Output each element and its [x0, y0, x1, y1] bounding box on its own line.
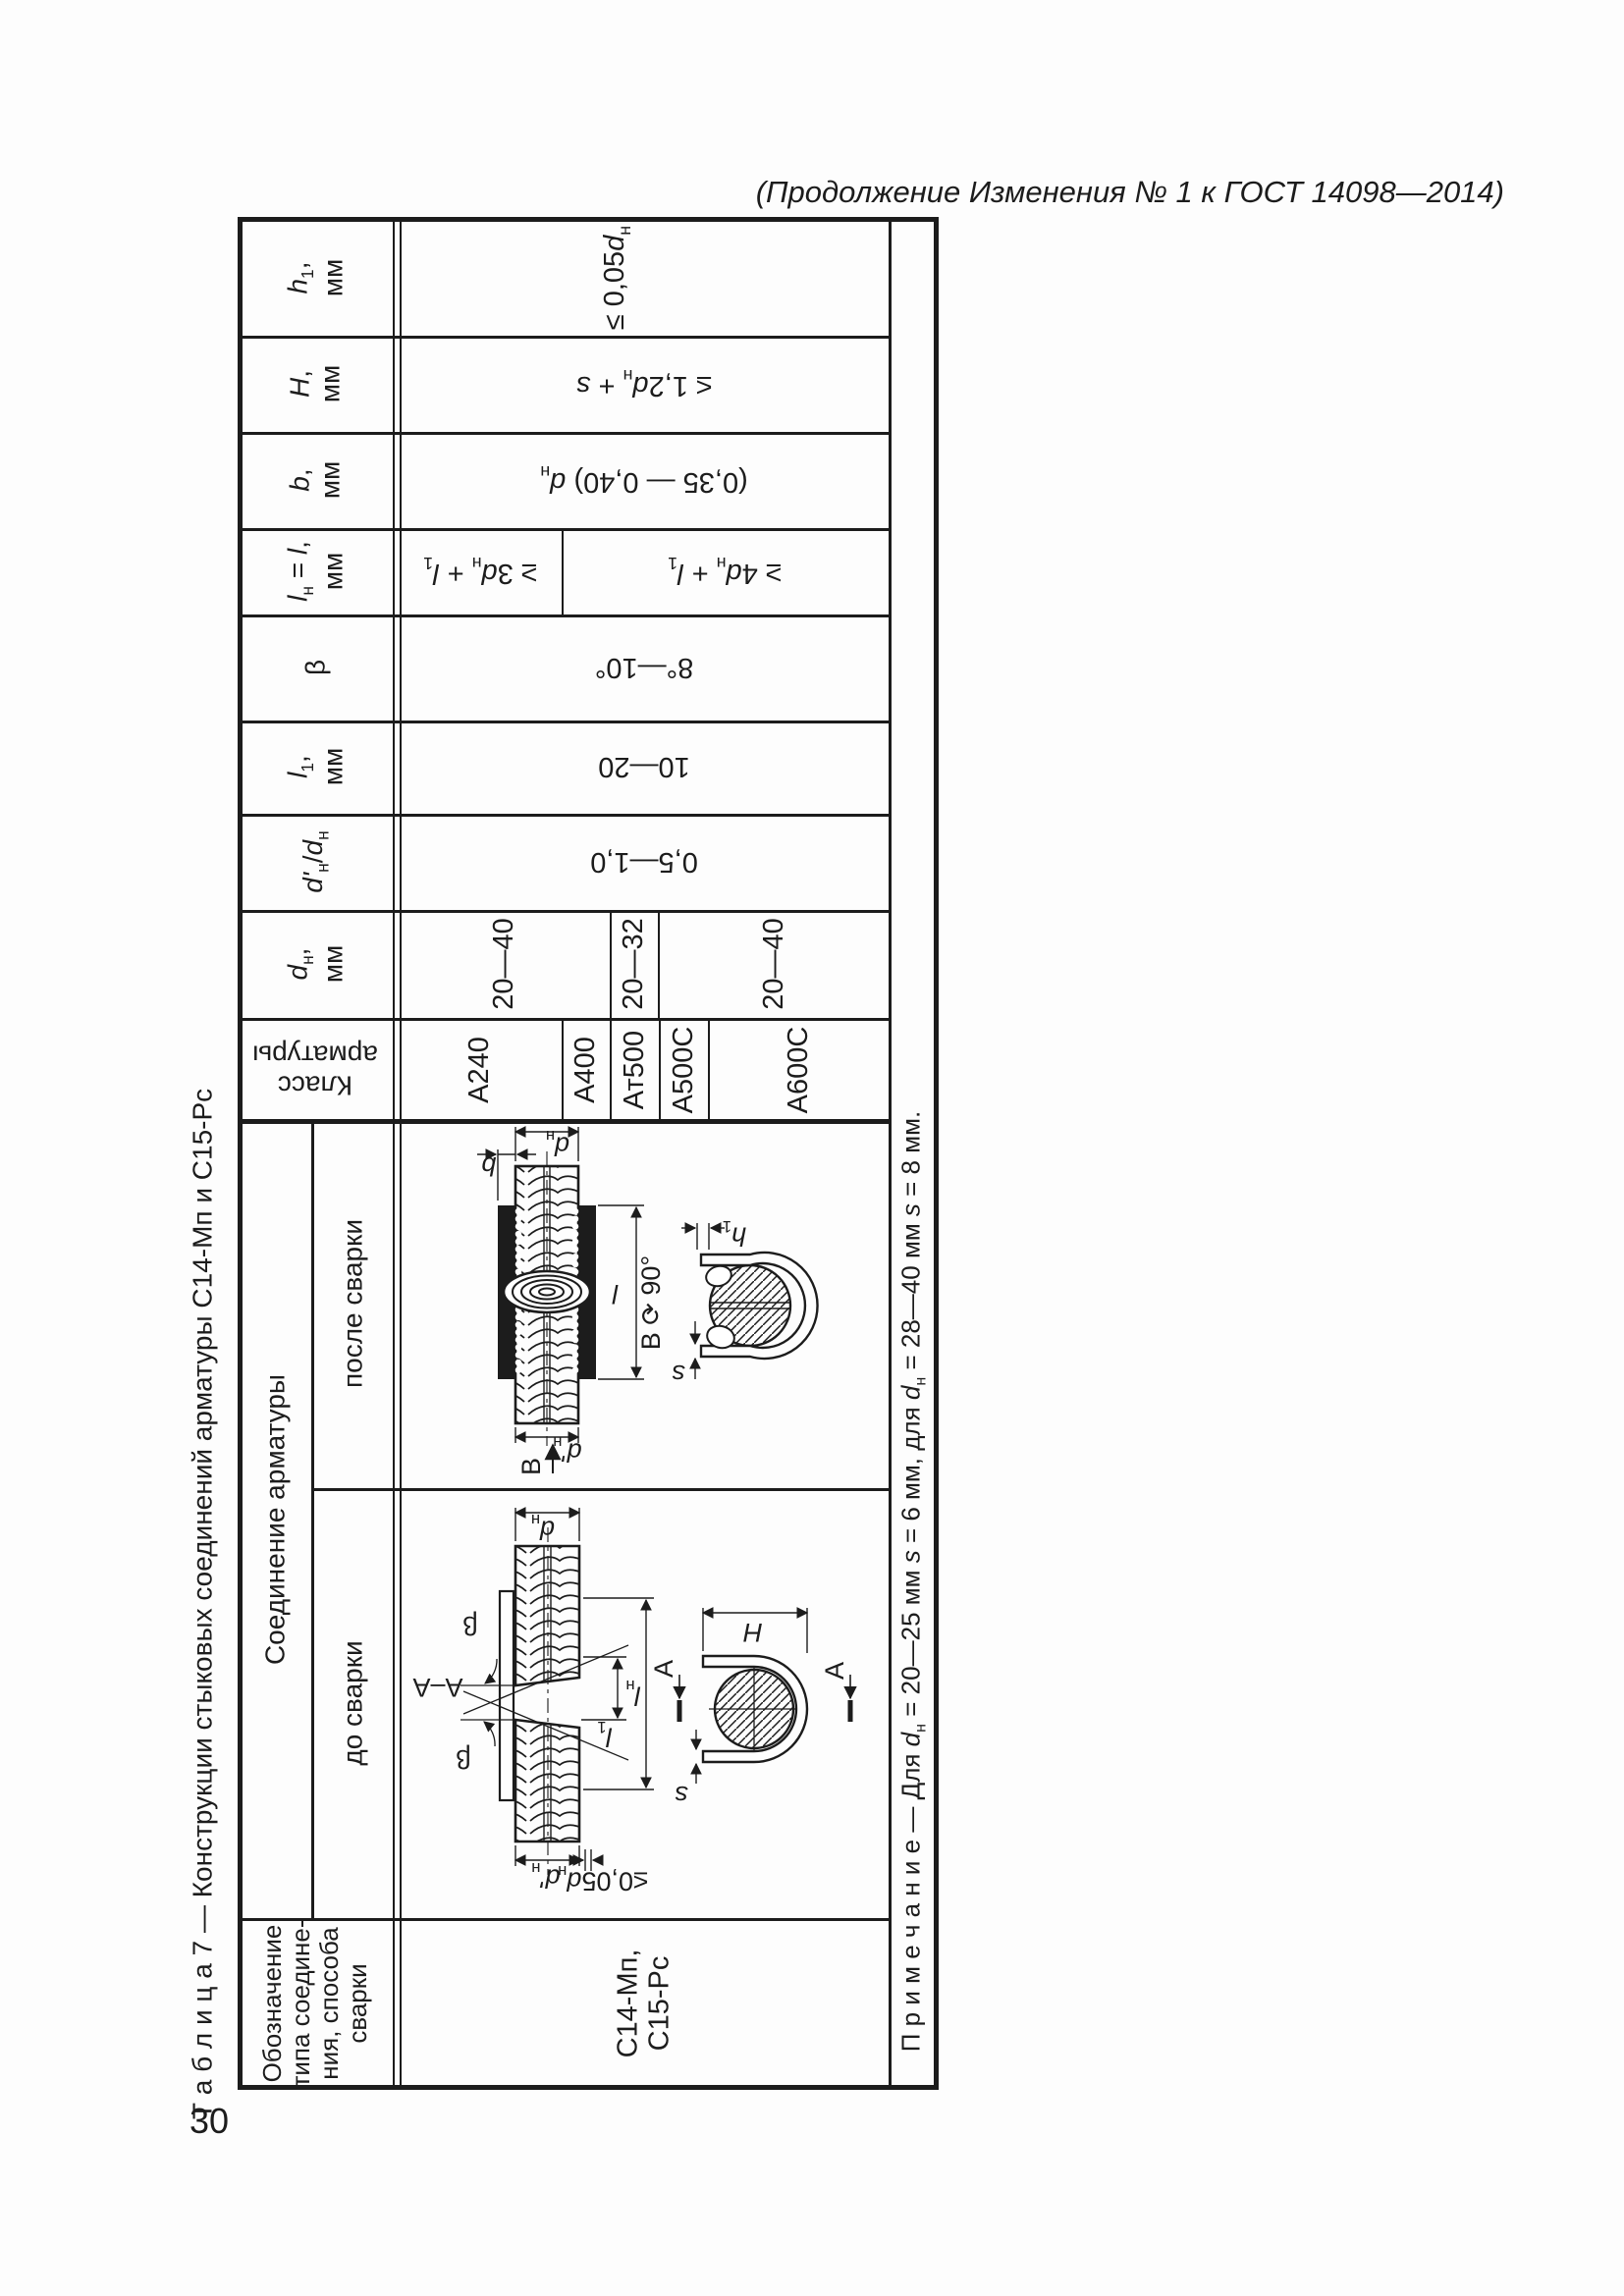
- col-header-class: Классарматуры: [252, 1040, 378, 1101]
- col-header-ln: lн = l,мм: [282, 541, 348, 602]
- grid-line-note-col: [889, 217, 892, 2090]
- table-caption: Т а б л и ц а 7 — Конструкции стыковых с…: [187, 1089, 217, 2119]
- col-header-dn: dн,мм: [282, 945, 348, 984]
- label-dn-after: dн: [546, 1126, 569, 1160]
- grid-line-double: [393, 217, 395, 2090]
- grid-line: [238, 910, 889, 913]
- dim-l1: [581, 1657, 626, 1720]
- col-header-H: Н,мм: [285, 365, 347, 403]
- label-section-aa: А–А: [412, 1673, 462, 1702]
- dim-ln: [583, 1598, 654, 1789]
- value-dn-2: 20—32: [618, 918, 649, 1010]
- value-ln-others: ≥ 4dн + l1: [668, 554, 782, 589]
- document-page: (Продолжение Изменения № 1 к ГОСТ 14098—…: [0, 0, 1624, 2296]
- value-h1: ≤ 0,05dн: [599, 226, 634, 331]
- grid-line: [562, 528, 564, 614]
- value-ln-a240: ≥ 3dн + l1: [423, 554, 537, 589]
- table-note: П р и м е ч а н и е — Для dн = 20—25 мм …: [896, 1111, 929, 2052]
- value-dn-ratio: 0,5—1,0: [590, 846, 698, 878]
- grid-line: [238, 432, 889, 435]
- label-dn-before: dн: [531, 1510, 555, 1544]
- label-b-after: b: [481, 1151, 496, 1181]
- value-class-a600s: А600С: [783, 1027, 814, 1114]
- label-beta-2: β: [456, 1744, 471, 1774]
- col-header-before-welding: до сварки: [337, 1640, 367, 1765]
- col-header-b: b,мм: [285, 461, 347, 500]
- col-header-after-welding: после сварки: [337, 1219, 367, 1388]
- label-l-after: l: [613, 1279, 619, 1308]
- grid-line: [658, 910, 660, 1018]
- value-designation: С14-Мп,С15-Рс: [613, 1949, 677, 2058]
- grid-line: [311, 1119, 314, 1918]
- cross-section-before: [679, 1608, 850, 1784]
- grid-line: [562, 1018, 564, 1119]
- label-dn2-before: d'н: [531, 1858, 560, 1893]
- col-header-h1: h1,мм: [282, 259, 348, 297]
- value-dn-1: 20—40: [488, 918, 519, 1010]
- label-axis-offset: ≤0,05dн: [558, 1861, 648, 1896]
- label-a-right: А: [820, 1662, 849, 1680]
- value-l1: 10—20: [598, 751, 690, 782]
- weld-bath: [504, 1271, 590, 1312]
- label-dn2-after: d'н: [553, 1432, 581, 1467]
- page-heading: (Продолжение Изменения № 1 к ГОСТ 14098—…: [756, 175, 1504, 210]
- value-beta: 8°—10°: [595, 652, 694, 683]
- col-header-joint-group: Соединение арматуры: [259, 1374, 290, 1665]
- grid-line: [610, 1018, 612, 1119]
- value-b: (0,35 — 0,40) dн: [540, 462, 747, 498]
- value-H: ≤ 1,2dн + s: [576, 366, 712, 401]
- grid-line: [238, 814, 889, 817]
- label-view-b: В: [516, 1458, 546, 1475]
- label-s-after: s: [672, 1360, 685, 1389]
- value-class-a500s: А500С: [668, 1027, 699, 1114]
- label-ln-before: lн: [625, 1676, 640, 1710]
- label-a-left: А: [649, 1660, 678, 1678]
- label-rotated-view: В ⟳ 90°: [636, 1255, 666, 1350]
- grid-line: [238, 336, 889, 339]
- value-class-a400: А400: [569, 1037, 601, 1103]
- rebar-splice-before: [460, 1508, 850, 1875]
- label-s-before: s: [675, 1781, 688, 1810]
- grid-line: [708, 1018, 710, 1119]
- value-class-at500: Ат500: [619, 1031, 650, 1109]
- col-header-beta: β: [299, 660, 330, 675]
- grid-line: [610, 910, 612, 1018]
- grid-line: [238, 721, 889, 723]
- value-dn-3: 20—40: [758, 918, 789, 1010]
- label-beta-1: β: [462, 1611, 478, 1640]
- label-l1-before: l1: [597, 1717, 612, 1751]
- grid-line: [659, 1018, 661, 1119]
- col-header-dn-ratio: d'н/dн: [298, 830, 333, 892]
- grid-line: [238, 614, 889, 617]
- label-h1-after: h1: [723, 1216, 746, 1251]
- col-header-l1: l1,мм: [282, 748, 348, 786]
- page-number: 30: [189, 2101, 229, 2142]
- diagram-before-welding: [401, 1490, 889, 1918]
- cross-section-after: [681, 1223, 818, 1379]
- col-header-designation: Обозначениетипа соедине-ния, способасвар…: [258, 1919, 372, 2087]
- label-H-before: Н: [743, 1618, 763, 1647]
- value-class-a240: А240: [463, 1037, 495, 1103]
